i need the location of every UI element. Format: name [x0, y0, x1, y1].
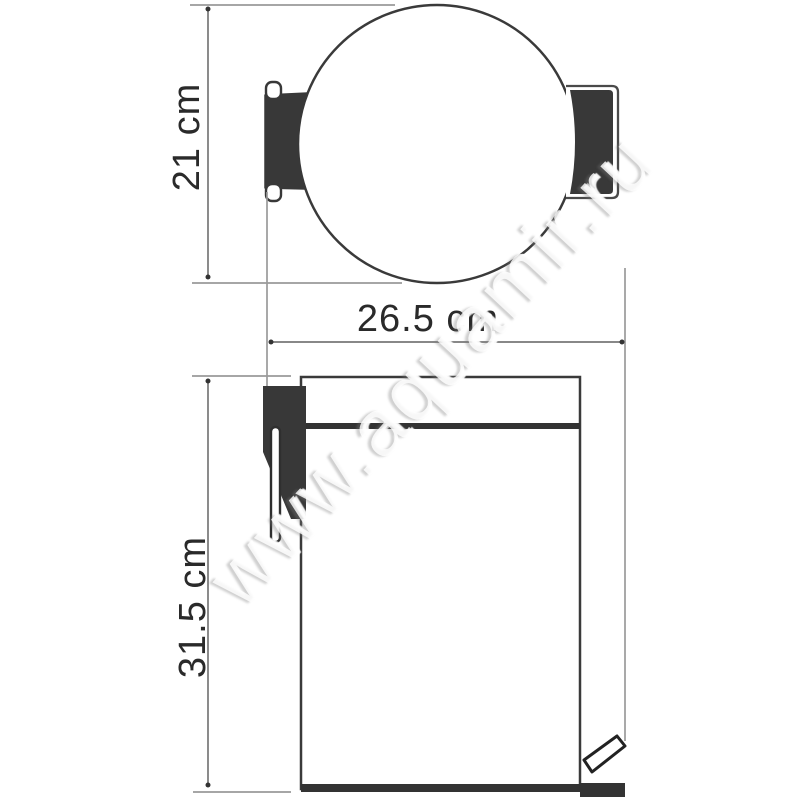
arrow-dot	[206, 379, 211, 384]
top-view-height-label: 21 cm	[167, 57, 207, 217]
arrow-dot	[269, 340, 274, 345]
top-view	[265, 5, 618, 283]
pedal	[584, 736, 625, 772]
front-view-height-label: 31.5 cm	[173, 517, 213, 697]
bin-body	[301, 377, 580, 789]
arrow-dot	[206, 783, 211, 788]
hinge-eyelet-bottom	[266, 184, 281, 201]
arrow-dot	[206, 7, 211, 12]
bin-lid-circle	[298, 5, 576, 283]
front-view	[263, 377, 625, 797]
arrow-dot	[206, 275, 211, 280]
dimension-drawing: 21 cm 26.5 cm 31.5 cm www.aquamir.ru	[0, 0, 800, 800]
arrow-dot	[620, 340, 625, 345]
lid-seam-bar	[303, 423, 580, 429]
handle-inner-block	[570, 90, 613, 194]
front-view-width-label: 26.5 cm	[328, 299, 528, 339]
lift-rod	[271, 427, 280, 542]
pedal-foot-base	[580, 783, 625, 797]
drawing-canvas	[0, 0, 800, 800]
hinge-eyelet-top	[266, 82, 281, 99]
hinge-bracket	[263, 386, 306, 519]
base-bar	[301, 784, 580, 792]
